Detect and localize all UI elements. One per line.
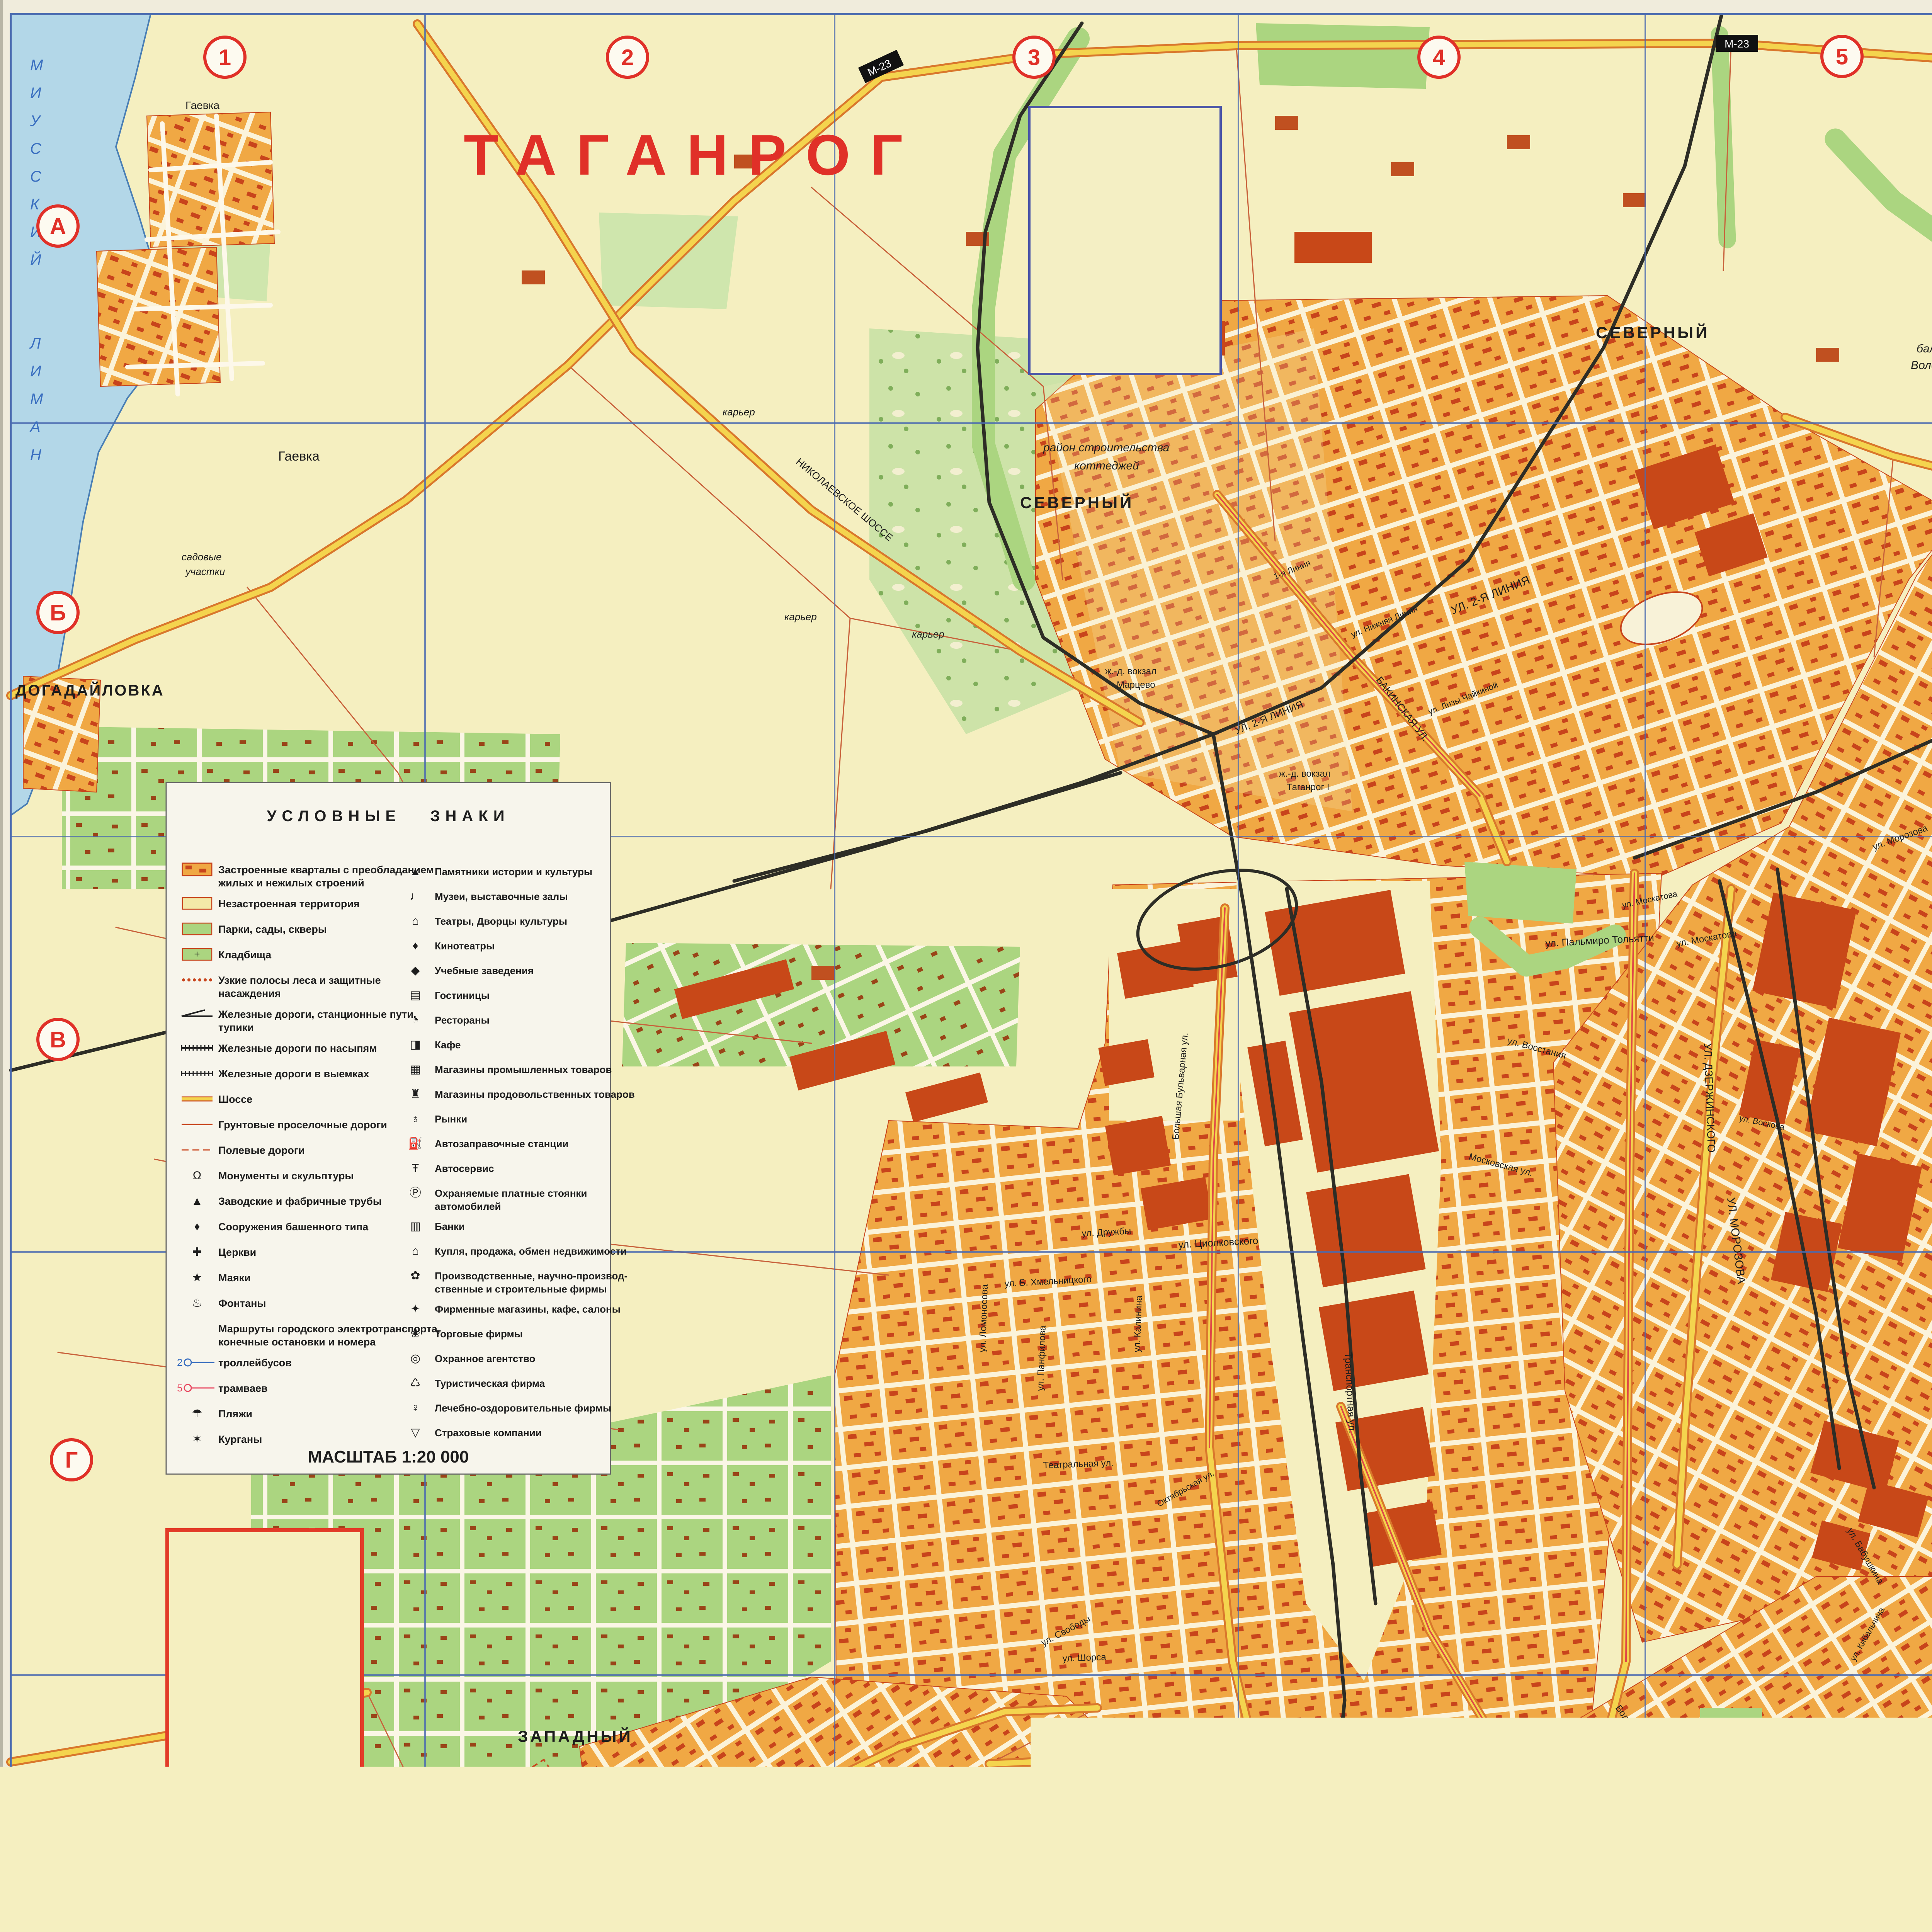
svg-text:Курганы: Курганы xyxy=(218,1434,262,1445)
svg-text:Железные дороги в выемках: Железные дороги в выемках xyxy=(218,1068,369,1080)
svg-text:ул. Калинина: ул. Калинина xyxy=(1132,1295,1144,1352)
svg-text:тупики: тупики xyxy=(218,1022,254,1033)
svg-text:Охранное агентство: Охранное агентство xyxy=(435,1353,536,1364)
svg-text:Гостиницы: Гостиницы xyxy=(435,990,490,1001)
svg-text:3: 3 xyxy=(1028,45,1040,70)
svg-text:Банки: Банки xyxy=(435,1221,465,1232)
svg-text:Пляжи: Пляжи xyxy=(218,1408,252,1420)
svg-text:Автосервис: Автосервис xyxy=(435,1163,494,1174)
svg-text:ственные и строительные фирмы: ственные и строительные фирмы xyxy=(435,1283,607,1295)
svg-text:+: + xyxy=(194,948,200,960)
svg-text:Таганрог I: Таганрог I xyxy=(1287,782,1330,793)
svg-text:Маршруты городского электротра: Маршруты городского электротранспорта, xyxy=(218,1323,440,1335)
svg-text:УСЛОВНЫЕ ЗНАКИ: УСЛОВНЫЕ ЗНАКИ xyxy=(267,808,510,825)
svg-text:♜: ♜ xyxy=(410,1088,421,1100)
svg-text:⌂: ⌂ xyxy=(412,1245,419,1257)
svg-text:А: А xyxy=(50,214,66,239)
svg-text:Фонтаны: Фонтаны xyxy=(218,1298,266,1309)
svg-text:Лечебно-оздоровительные фирмы: Лечебно-оздоровительные фирмы xyxy=(435,1402,611,1414)
svg-text:⛽: ⛽ xyxy=(408,1136,422,1150)
svg-text:Церкви: Церкви xyxy=(218,1247,256,1258)
svg-text:♦: ♦ xyxy=(412,939,418,952)
svg-text:балка: балка xyxy=(1917,342,1932,355)
svg-text:Магазины промышленных товаров: Магазины промышленных товаров xyxy=(435,1064,612,1075)
svg-text:✶: ✶ xyxy=(192,1433,202,1446)
svg-text:✚: ✚ xyxy=(192,1246,202,1259)
svg-text:♩: ♩ xyxy=(410,890,421,903)
svg-text:МАСШТАБ 1:20 000: МАСШТАБ 1:20 000 xyxy=(308,1447,469,1466)
svg-text:Д: Д xyxy=(59,1879,75,1904)
svg-text:район строительства: район строительства xyxy=(1043,441,1169,454)
svg-text:▦: ▦ xyxy=(410,1063,421,1076)
svg-text:карьер: карьер xyxy=(723,406,755,418)
svg-text:карьер: карьер xyxy=(912,628,944,640)
svg-text:Кафе: Кафе xyxy=(435,1039,461,1051)
svg-text:☂: ☂ xyxy=(192,1407,202,1420)
svg-text:Магазины продовольственных тов: Магазины продовольственных товаров xyxy=(435,1088,635,1100)
svg-text:▲: ▲ xyxy=(410,865,421,878)
svg-text:⌂: ⌂ xyxy=(412,915,419,927)
svg-text:Маяки: Маяки xyxy=(218,1272,251,1284)
svg-text:В: В xyxy=(50,1027,66,1052)
svg-text:Незастроенная территория: Незастроенная территория xyxy=(218,898,360,910)
svg-text:ТАГАНРОГ: ТАГАНРОГ xyxy=(464,123,923,187)
svg-text:культуры и отдыха: культуры и отдыха xyxy=(1704,1783,1797,1795)
svg-text:троллейбусов: троллейбусов xyxy=(218,1357,292,1369)
svg-text:ЗАПАДНЫЙ: ЗАПАДНЫЙ xyxy=(518,1727,633,1745)
svg-text:Страховые компании: Страховые компании xyxy=(435,1427,542,1439)
svg-text:◎: ◎ xyxy=(410,1352,420,1365)
svg-text:Монументы и скульптуры: Монументы и скульптуры xyxy=(218,1170,354,1182)
svg-text:Сооружения башенного типа: Сооружения башенного типа xyxy=(218,1221,369,1233)
svg-text:♁: ♁ xyxy=(411,1112,420,1125)
svg-text:2: 2 xyxy=(177,1357,182,1368)
svg-text:◆: ◆ xyxy=(411,964,420,977)
svg-text:♀: ♀ xyxy=(411,1401,420,1414)
svg-text:▤: ▤ xyxy=(410,989,421,1002)
svg-text:Железные дороги по насыпям: Железные дороги по насыпям xyxy=(218,1043,377,1054)
svg-text:◔: ◔ xyxy=(412,1014,419,1026)
svg-text:Учебные заведения: Учебные заведения xyxy=(435,965,534,976)
svg-text:◨: ◨ xyxy=(410,1038,421,1051)
svg-text:❀: ❀ xyxy=(410,1327,420,1340)
svg-text:Купля, продажа, обмен недвижим: Купля, продажа, обмен недвижимости xyxy=(435,1245,627,1257)
svg-text:2: 2 xyxy=(621,45,634,70)
svg-text:Воловая: Воловая xyxy=(1911,359,1932,372)
svg-text:1: 1 xyxy=(219,45,231,70)
svg-text:Рестораны: Рестораны xyxy=(435,1014,490,1026)
svg-text:Охраняемые платные стоянки: Охраняемые платные стоянки xyxy=(435,1187,587,1199)
svg-text:★: ★ xyxy=(192,1271,202,1284)
svg-text:насаждения: насаждения xyxy=(218,988,281,999)
svg-text:Кинотеатры: Кинотеатры xyxy=(435,940,495,952)
svg-text:Памятники истории и культуры: Памятники истории и культуры xyxy=(435,866,592,878)
svg-text:Г: Г xyxy=(65,1447,78,1473)
svg-text:Автозаправочные станции: Автозаправочные станции xyxy=(435,1138,568,1150)
svg-text:трамваев: трамваев xyxy=(218,1383,268,1394)
svg-text:ж.-д. вокзал: ж.-д. вокзал xyxy=(1105,666,1156,677)
svg-text:▽: ▽ xyxy=(411,1426,420,1439)
svg-text:Шоссе: Шоссе xyxy=(218,1094,252,1105)
svg-text:Парк: Парк xyxy=(1727,1768,1752,1780)
svg-text:✿: ✿ xyxy=(410,1269,420,1282)
svg-text:Ω: Ω xyxy=(193,1169,201,1182)
svg-text:участки: участки xyxy=(185,566,225,577)
svg-text:ж.-д. вокзал: ж.-д. вокзал xyxy=(1279,769,1330,779)
svg-text:Полевые дороги: Полевые дороги xyxy=(218,1145,305,1156)
svg-text:✦: ✦ xyxy=(410,1303,420,1315)
svg-text:Узкие полосы леса и защитные: Узкие полосы леса и защитные xyxy=(218,975,381,986)
svg-text:СЕВЕРНЫЙ: СЕВЕРНЫЙ xyxy=(1596,323,1709,342)
svg-text:5: 5 xyxy=(1836,44,1848,69)
svg-text:♦: ♦ xyxy=(194,1220,200,1233)
svg-text:Фирменные магазины, кафе, сало: Фирменные магазины, кафе, салоны xyxy=(435,1303,621,1315)
svg-text:Грунтовые проселочные дороги: Грунтовые проселочные дороги xyxy=(218,1119,387,1131)
svg-text:Музеи, выставочные залы: Музеи, выставочные залы xyxy=(435,891,568,902)
svg-text:СЕВЕРНЫЙ: СЕВЕРНЫЙ xyxy=(1020,493,1134,512)
svg-text:Заводские и фабричные трубы: Заводские и фабричные трубы xyxy=(218,1196,382,1207)
svg-text:▥: ▥ xyxy=(410,1220,421,1233)
svg-text:ул. Шорса: ул. Шорса xyxy=(1062,1652,1106,1664)
svg-text:Гаевка: Гаевка xyxy=(278,449,320,464)
svg-text:коттеджей: коттеджей xyxy=(1074,459,1139,472)
svg-text:Торговые фирмы: Торговые фирмы xyxy=(435,1328,523,1340)
svg-text:автомобилей: автомобилей xyxy=(435,1201,501,1212)
svg-text:Ŧ: Ŧ xyxy=(412,1162,419,1175)
svg-text:4: 4 xyxy=(1433,45,1445,70)
svg-text:Рынки: Рынки xyxy=(435,1113,467,1125)
svg-text:Парки, сады, скверы: Парки, сады, скверы xyxy=(218,923,327,935)
svg-text:ДОГАДАЙЛОВКА: ДОГАДАЙЛОВКА xyxy=(15,681,165,699)
svg-text:Туристическая фирма: Туристическая фирма xyxy=(435,1378,545,1389)
svg-text:▲: ▲ xyxy=(191,1195,203,1207)
svg-text:♨: ♨ xyxy=(192,1297,202,1310)
svg-text:Застроенные кварталы с преобла: Застроенные кварталы с преобладанием xyxy=(218,864,434,876)
svg-text:5: 5 xyxy=(177,1382,182,1394)
svg-text:Железные дороги, станционные п: Железные дороги, станционные пути, xyxy=(218,1009,416,1020)
svg-text:Б: Б xyxy=(50,600,66,625)
svg-text:Гаевка: Гаевка xyxy=(185,99,219,111)
svg-text:карьер: карьер xyxy=(784,611,817,622)
svg-text:♺: ♺ xyxy=(410,1377,421,1389)
svg-text:Театры, Дворцы культуры: Театры, Дворцы культуры xyxy=(435,915,567,927)
svg-text:Кладбища: Кладбища xyxy=(218,949,272,961)
svg-text:конечные остановки и номера: конечные остановки и номера xyxy=(218,1336,376,1348)
svg-text:М-23: М-23 xyxy=(1725,38,1749,50)
svg-text:Ⓟ: Ⓟ xyxy=(410,1187,421,1199)
svg-text:Производственные, научно-произ: Производственные, научно-производ- xyxy=(435,1270,628,1282)
svg-text:Марцево: Марцево xyxy=(1117,680,1155,690)
svg-text:жилых и нежилых строений: жилых и нежилых строений xyxy=(218,877,364,889)
svg-text:садовые: садовые xyxy=(182,551,221,563)
